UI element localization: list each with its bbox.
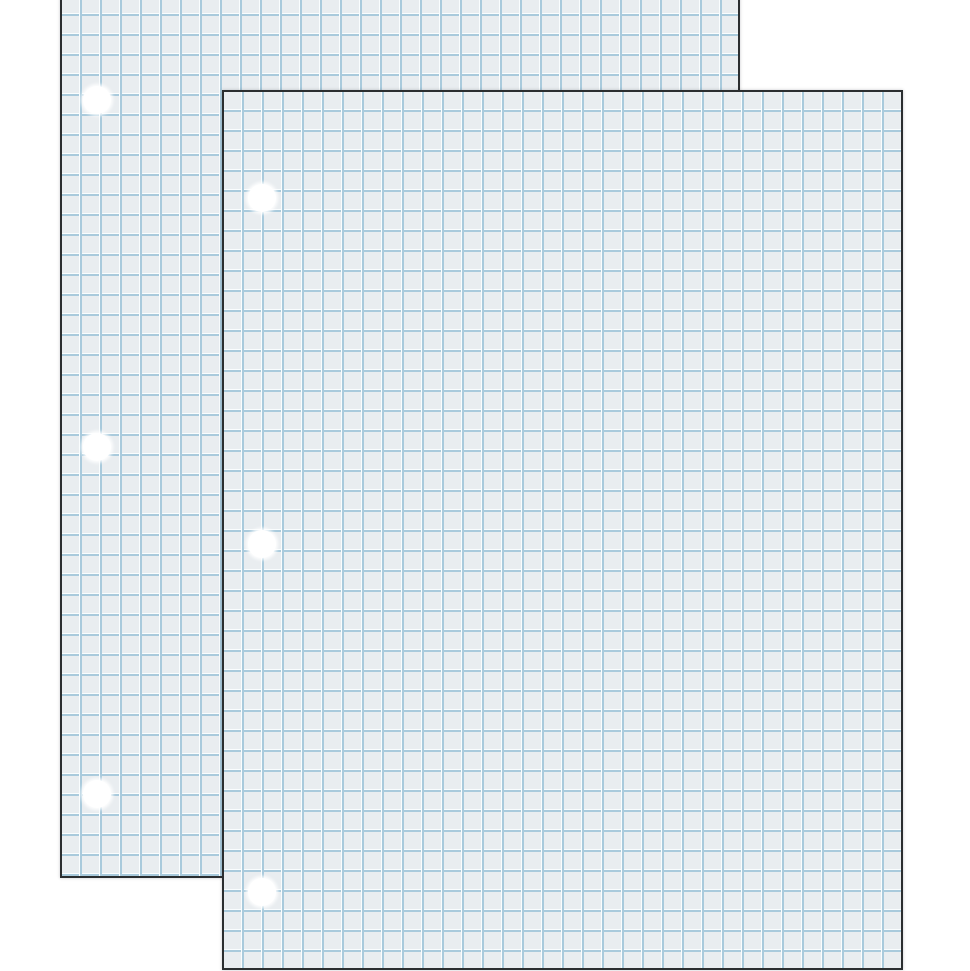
graph-paper-sheet-front [222, 90, 903, 970]
punch-hole [83, 433, 111, 461]
punch-hole [83, 86, 111, 114]
product-image-graph-paper [0, 0, 970, 971]
punch-hole [248, 878, 276, 906]
punch-hole [83, 780, 111, 808]
punch-hole [248, 530, 276, 558]
punch-hole [248, 184, 276, 212]
